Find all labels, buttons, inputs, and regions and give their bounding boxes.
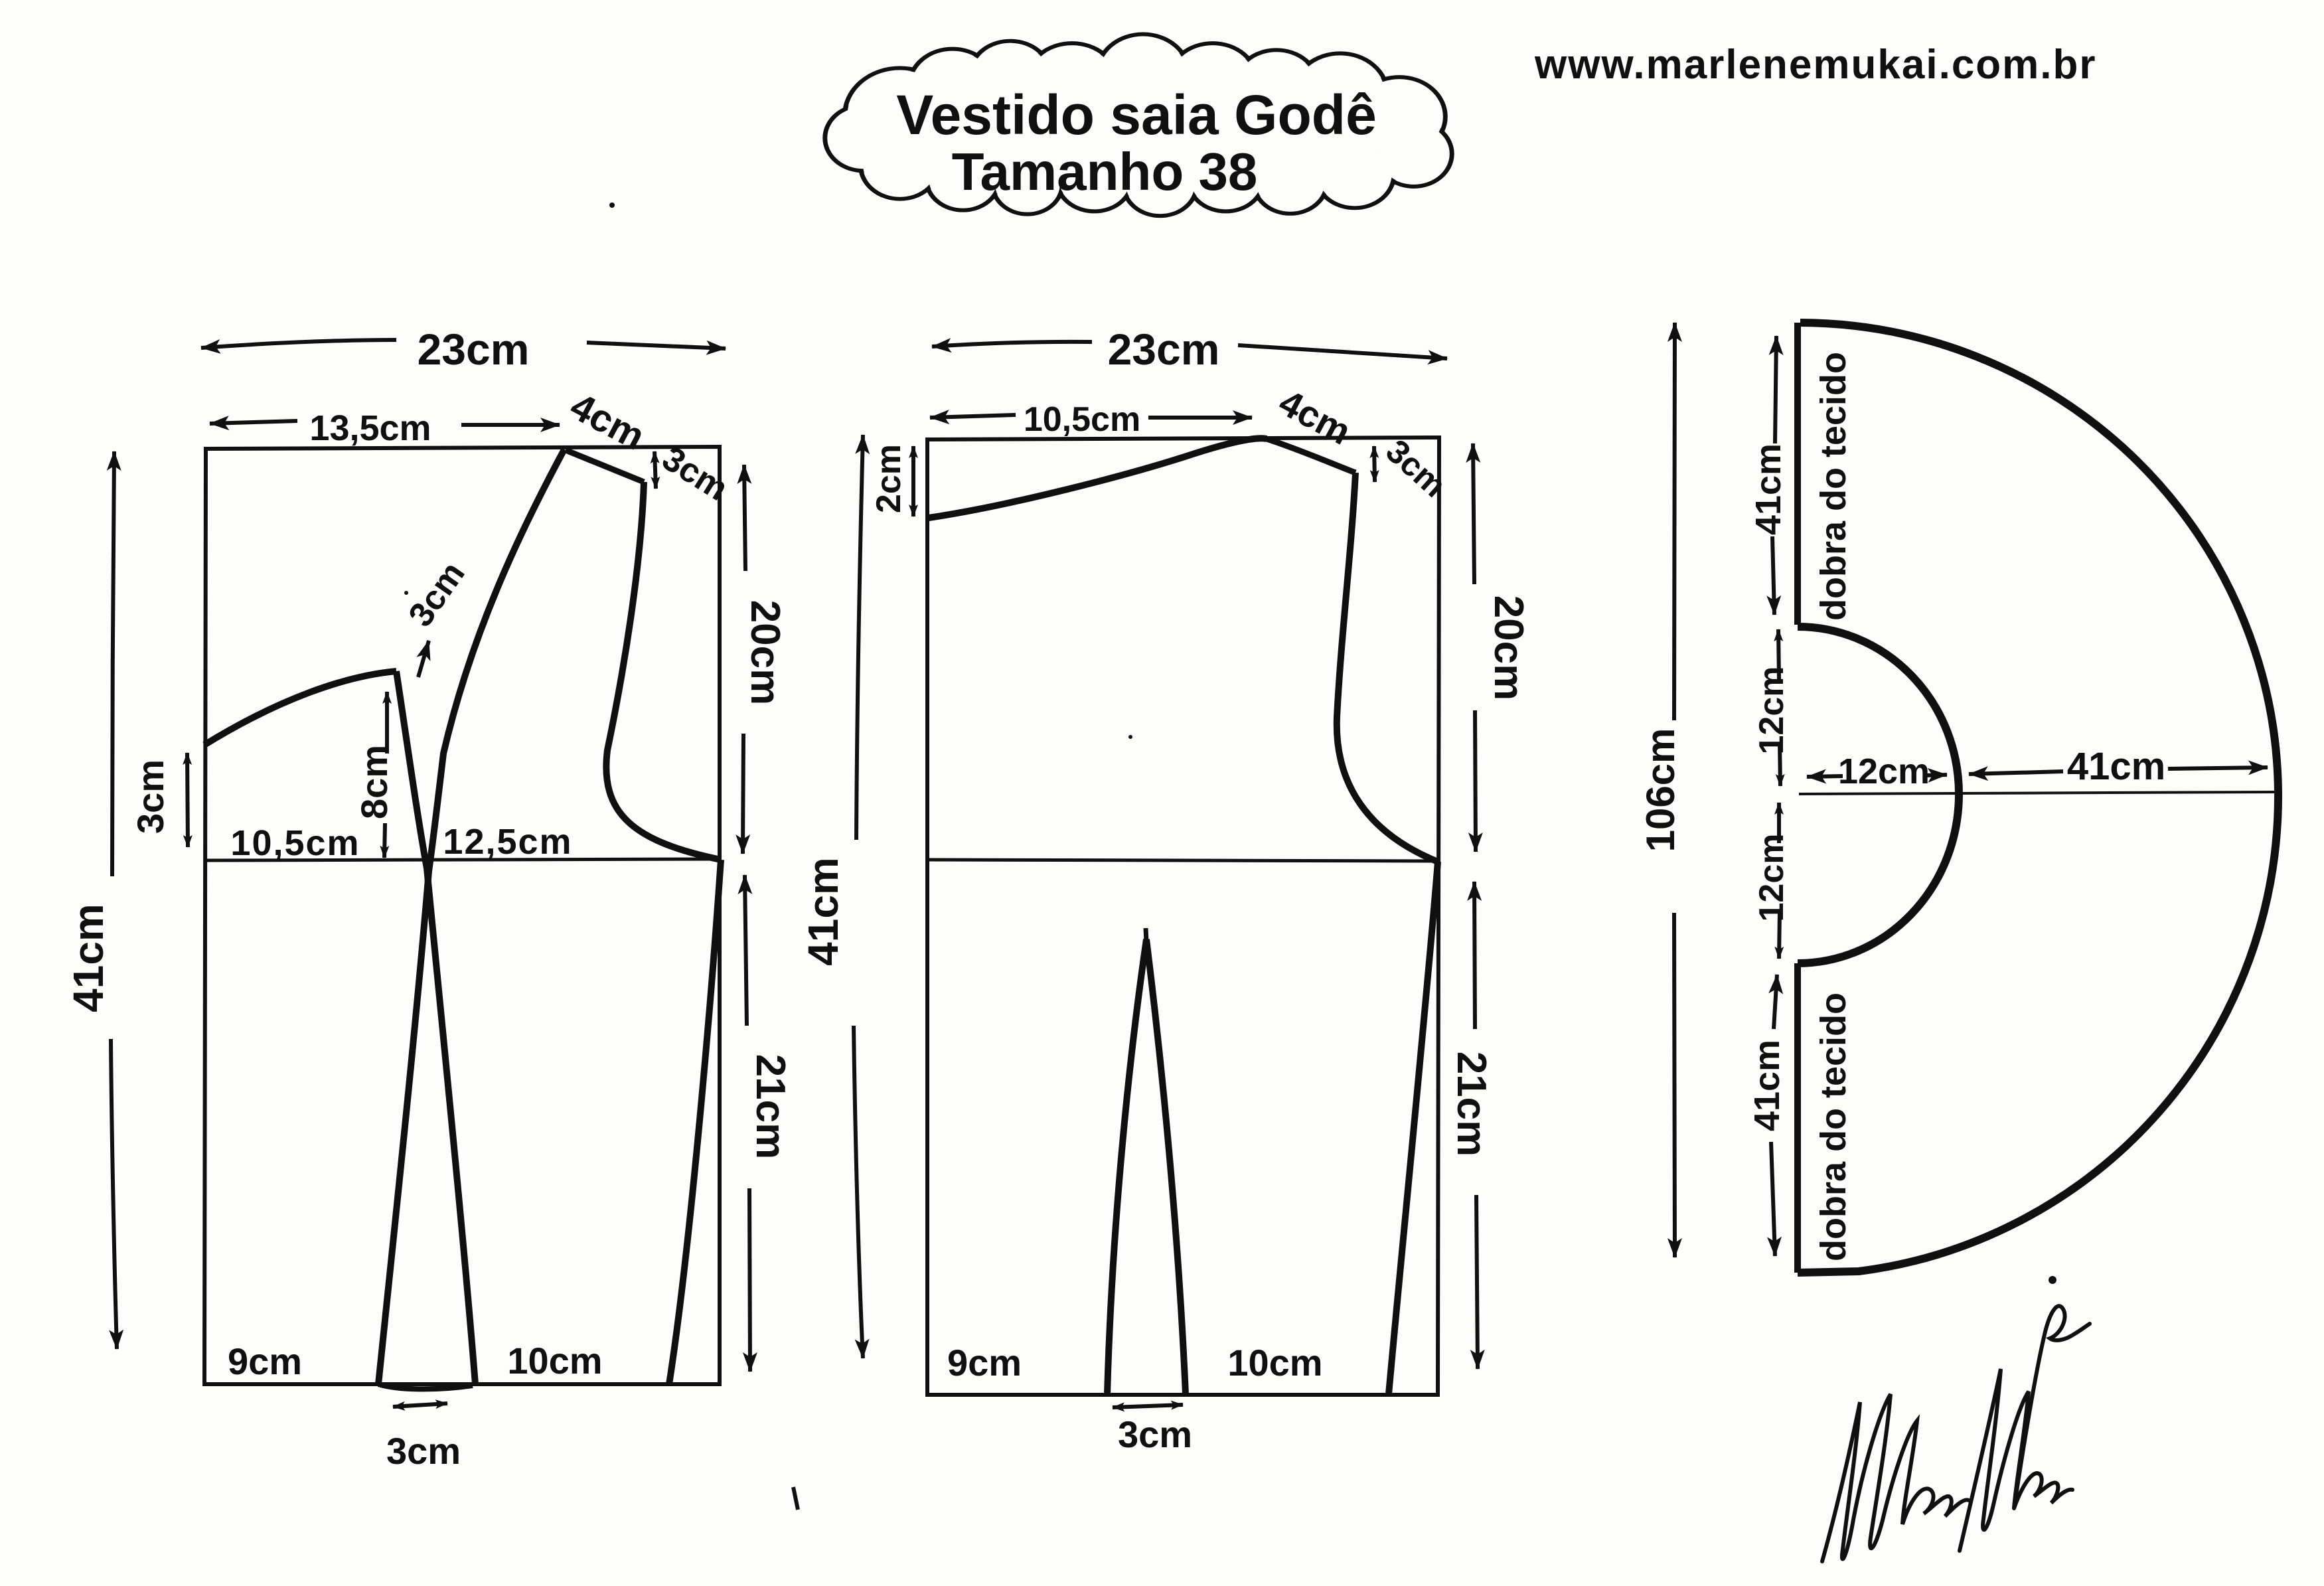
svg-text:dobra do tecido: dobra do tecido xyxy=(1814,992,1853,1261)
svg-text:13,5cm: 13,5cm xyxy=(309,408,431,448)
svg-text:www.marlenemukai.com.br: www.marlenemukai.com.br xyxy=(1534,42,2097,88)
svg-text:9cm: 9cm xyxy=(228,1340,302,1382)
svg-text:23cm: 23cm xyxy=(1108,325,1220,374)
svg-text:12cm: 12cm xyxy=(1838,752,1930,791)
svg-text:10,5cm: 10,5cm xyxy=(230,823,360,863)
svg-text:2cm: 2cm xyxy=(870,444,908,513)
svg-text:8cm: 8cm xyxy=(353,745,395,819)
svg-text:41cm: 41cm xyxy=(799,857,847,966)
svg-text:41cm: 41cm xyxy=(2067,745,2165,788)
svg-text:12,5cm: 12,5cm xyxy=(443,822,572,862)
svg-text:3cm: 3cm xyxy=(386,1430,461,1472)
svg-text:41cm: 41cm xyxy=(64,904,112,1012)
svg-text:41cm: 41cm xyxy=(1748,443,1788,535)
svg-text:12cm: 12cm xyxy=(1752,834,1791,922)
svg-text:Vestido saia Godê: Vestido saia Godê xyxy=(896,84,1377,146)
svg-text:23cm: 23cm xyxy=(418,325,530,374)
svg-text:106cm: 106cm xyxy=(1638,728,1683,852)
svg-text:21cm: 21cm xyxy=(747,1054,793,1160)
svg-text:21cm: 21cm xyxy=(1448,1052,1494,1157)
svg-text:9cm: 9cm xyxy=(947,1342,1022,1384)
svg-text:Tamanho 38: Tamanho 38 xyxy=(952,142,1258,201)
svg-text:20cm: 20cm xyxy=(1486,595,1531,701)
svg-text:20cm: 20cm xyxy=(742,600,788,706)
svg-text:41cm: 41cm xyxy=(1747,1040,1787,1131)
svg-text:dobra do tecido: dobra do tecido xyxy=(1814,352,1853,621)
svg-text:10cm: 10cm xyxy=(1227,1342,1322,1384)
svg-text:3cm: 3cm xyxy=(129,759,171,834)
svg-text:10cm: 10cm xyxy=(507,1340,602,1382)
svg-text:10,5cm: 10,5cm xyxy=(1024,400,1140,439)
svg-text:3cm: 3cm xyxy=(1118,1413,1192,1455)
svg-text:12cm: 12cm xyxy=(1752,667,1791,755)
